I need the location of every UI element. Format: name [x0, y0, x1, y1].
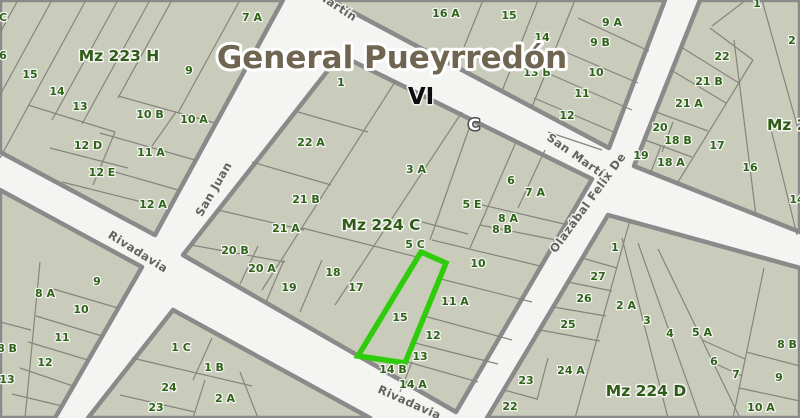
parcel-label-mz-223-h-c[interactable]: C: [0, 11, 7, 24]
parcel-label-mz-224-c-8-b[interactable]: 8 B: [492, 223, 512, 236]
parcel-label-mz-2-northeast-19[interactable]: 19: [633, 149, 648, 162]
parcel-label-mz-224-c-21-a[interactable]: 21 A: [272, 222, 300, 235]
parcel-label-block-south-center-1-c[interactable]: 1 C: [171, 341, 191, 354]
parcel-label-mz-224-d-2-a[interactable]: 2 A: [616, 299, 636, 312]
parcel-label-block-south-west-8-a[interactable]: 8 A: [35, 287, 55, 300]
block-label-mz-224-d: Mz 224 D: [606, 382, 687, 400]
block-label-mz-2: Mz 2: [767, 116, 800, 134]
parcel-label-mz-223-h-9[interactable]: 9: [185, 64, 193, 77]
parcel-label-mz-223-h-12-a[interactable]: 12 A: [139, 198, 167, 211]
parcel-label-mz-223-h-12-e[interactable]: 12 E: [89, 166, 116, 179]
parcel-label-block-south-center-24[interactable]: 24: [161, 381, 177, 394]
parcel-label-mz-223-h-10-a[interactable]: 10 A: [180, 113, 208, 126]
parcel-label-mz-224-d-4[interactable]: 4: [666, 327, 674, 340]
parcel-label-mz-224-c-17[interactable]: 17: [348, 281, 363, 294]
cadastral-map-viewport[interactable]: C615141312 D12 E12 A11 A10 B10 A97 A16 A…: [0, 0, 800, 418]
parcel-label-mz-224-c-22-a[interactable]: 22 A: [297, 136, 325, 149]
parcel-label-mz-224-d-1[interactable]: 1: [611, 241, 619, 254]
parcel-label-mz-2-northeast-21-b[interactable]: 21 B: [695, 75, 723, 88]
parcel-label-mz-2-northeast-1[interactable]: 1: [753, 0, 761, 10]
parcel-label-block-south-west-13[interactable]: 13: [0, 373, 15, 386]
parcel-label-mz-224-d-24-a[interactable]: 24 A: [557, 364, 585, 377]
parcel-label-mz-224-d-6[interactable]: 6: [710, 355, 718, 368]
parcel-label-mz-224-c-20-a[interactable]: 20 A: [248, 262, 276, 275]
parcel-label-mz-2-northeast-20[interactable]: 20: [652, 121, 668, 134]
parcel-label-mz-224-c-19[interactable]: 19: [281, 281, 296, 294]
parcel-label-mz-224-c-11-a[interactable]: 11 A: [441, 295, 469, 308]
parcel-label-mz-223-h-14[interactable]: 14: [49, 85, 65, 98]
parcel-label-mz-2-northeast-18-a[interactable]: 18 A: [657, 156, 685, 169]
parcel-label-block-north-center-11[interactable]: 11: [574, 87, 589, 100]
parcel-label-mz-224-d-10-a[interactable]: 10 A: [747, 401, 775, 414]
parcel-label-mz-224-c-1[interactable]: 1: [337, 76, 345, 89]
parcel-label-mz-224-c-14-b[interactable]: 14 B: [379, 363, 407, 376]
parcel-label-block-north-center-16-a[interactable]: 16 A: [432, 7, 460, 20]
parcel-label-mz-2-northeast-17[interactable]: 17: [709, 139, 724, 152]
parcel-label-mz-224-c-15[interactable]: 15: [392, 311, 407, 324]
map-canvas[interactable]: C615141312 D12 E12 A11 A10 B10 A97 A16 A…: [0, 0, 800, 418]
parcel-label-block-south-center-2-a[interactable]: 2 A: [215, 392, 235, 405]
parcel-label-mz-224-d-25[interactable]: 25: [560, 318, 575, 331]
parcel-label-mz-224-d-23[interactable]: 23: [518, 374, 533, 387]
parcel-label-mz-224-c-13[interactable]: 13: [412, 350, 427, 363]
zone-label: VI: [408, 84, 434, 110]
parcel-label-mz-223-h-7-a[interactable]: 7 A: [242, 11, 262, 24]
parcel-label-mz-224-d-26[interactable]: 26: [576, 292, 592, 305]
parcel-label-mz-223-h-10-b[interactable]: 10 B: [136, 108, 164, 121]
parcel-label-mz-224-d-27[interactable]: 27: [590, 270, 605, 283]
section-label: C: [468, 115, 480, 134]
parcel-label-mz-224-d-8-b[interactable]: 8 B: [777, 338, 797, 351]
parcel-label-mz-224-c-12[interactable]: 12: [425, 329, 440, 342]
parcel-label-mz-2-northeast-18-b[interactable]: 18 B: [664, 134, 692, 147]
parcel-label-block-south-west-11[interactable]: 11: [54, 331, 69, 344]
parcel-label-mz-223-h-13[interactable]: 13: [72, 100, 87, 113]
parcel-label-mz-224-c-5-c[interactable]: 5 C: [405, 238, 425, 251]
parcel-label-mz-2-northeast-21-a[interactable]: 21 A: [675, 97, 703, 110]
parcel-label-mz-223-h-11-a[interactable]: 11 A: [137, 146, 165, 159]
parcel-label-mz-224-c-14-a[interactable]: 14 A: [399, 378, 427, 391]
parcel-label-block-south-west-9[interactable]: 9: [93, 275, 101, 288]
parcel-label-mz-2-northeast-2[interactable]: 2: [788, 34, 796, 47]
parcel-label-mz-224-d-22[interactable]: 22: [502, 400, 517, 413]
parcel-label-mz-223-h-6[interactable]: 6: [0, 49, 7, 62]
block-label-mz-223-h: Mz 223 H: [79, 47, 160, 65]
parcel-label-block-north-center-10[interactable]: 10: [588, 66, 604, 79]
parcel-label-mz-224-c-3-a[interactable]: 3 A: [406, 163, 426, 176]
parcel-label-mz-224-d-7[interactable]: 7: [732, 368, 740, 381]
parcel-label-mz-224-d-3[interactable]: 3: [643, 314, 651, 327]
parcel-label-block-north-center-9-b[interactable]: 9 B: [590, 36, 610, 49]
parcel-label-block-south-west-12[interactable]: 12: [37, 356, 52, 369]
parcel-label-block-north-center-15[interactable]: 15: [501, 9, 516, 22]
parcel-label-mz-2-northeast-16[interactable]: 16: [742, 161, 758, 174]
block-label-mz-224-c: Mz 224 C: [342, 216, 421, 234]
parcel-label-mz-224-c-7-a[interactable]: 7 A: [525, 186, 545, 199]
parcel-label-mz-2-northeast-14[interactable]: 14: [789, 193, 800, 206]
parcel-label-mz-223-h-12-d[interactable]: 12 D: [74, 139, 102, 152]
parcel-label-mz-223-h-15[interactable]: 15: [22, 68, 37, 81]
parcel-label-block-south-center-23[interactable]: 23: [148, 401, 163, 414]
parcel-label-mz-224-c-20-b[interactable]: 20 B: [221, 244, 249, 257]
parcel-label-block-north-center-9-a[interactable]: 9 A: [602, 16, 622, 29]
parcel-label-mz-224-c-18[interactable]: 18: [325, 266, 340, 279]
parcel-label-mz-224-c-6[interactable]: 6: [507, 174, 515, 187]
parcel-label-mz-224-c-5-e[interactable]: 5 E: [463, 198, 482, 211]
parcel-label-mz-224-d-9[interactable]: 9: [775, 371, 783, 384]
parcel-label-block-south-center-1-b[interactable]: 1 B: [204, 361, 224, 374]
parcel-label-block-north-center-12[interactable]: 12: [559, 109, 574, 122]
parcel-label-mz-2-northeast-22[interactable]: 22: [714, 50, 729, 63]
parcel-label-mz-224-c-10[interactable]: 10: [470, 257, 486, 270]
parcel-label-mz-224-c-21-b[interactable]: 21 B: [292, 193, 320, 206]
map-title: General Pueyrredón: [217, 40, 567, 76]
parcel-label-block-south-west-8-b[interactable]: 8 B: [0, 342, 17, 355]
parcel-label-mz-224-d-5-a[interactable]: 5 A: [692, 326, 712, 339]
parcel-label-block-south-west-10[interactable]: 10: [73, 303, 89, 316]
